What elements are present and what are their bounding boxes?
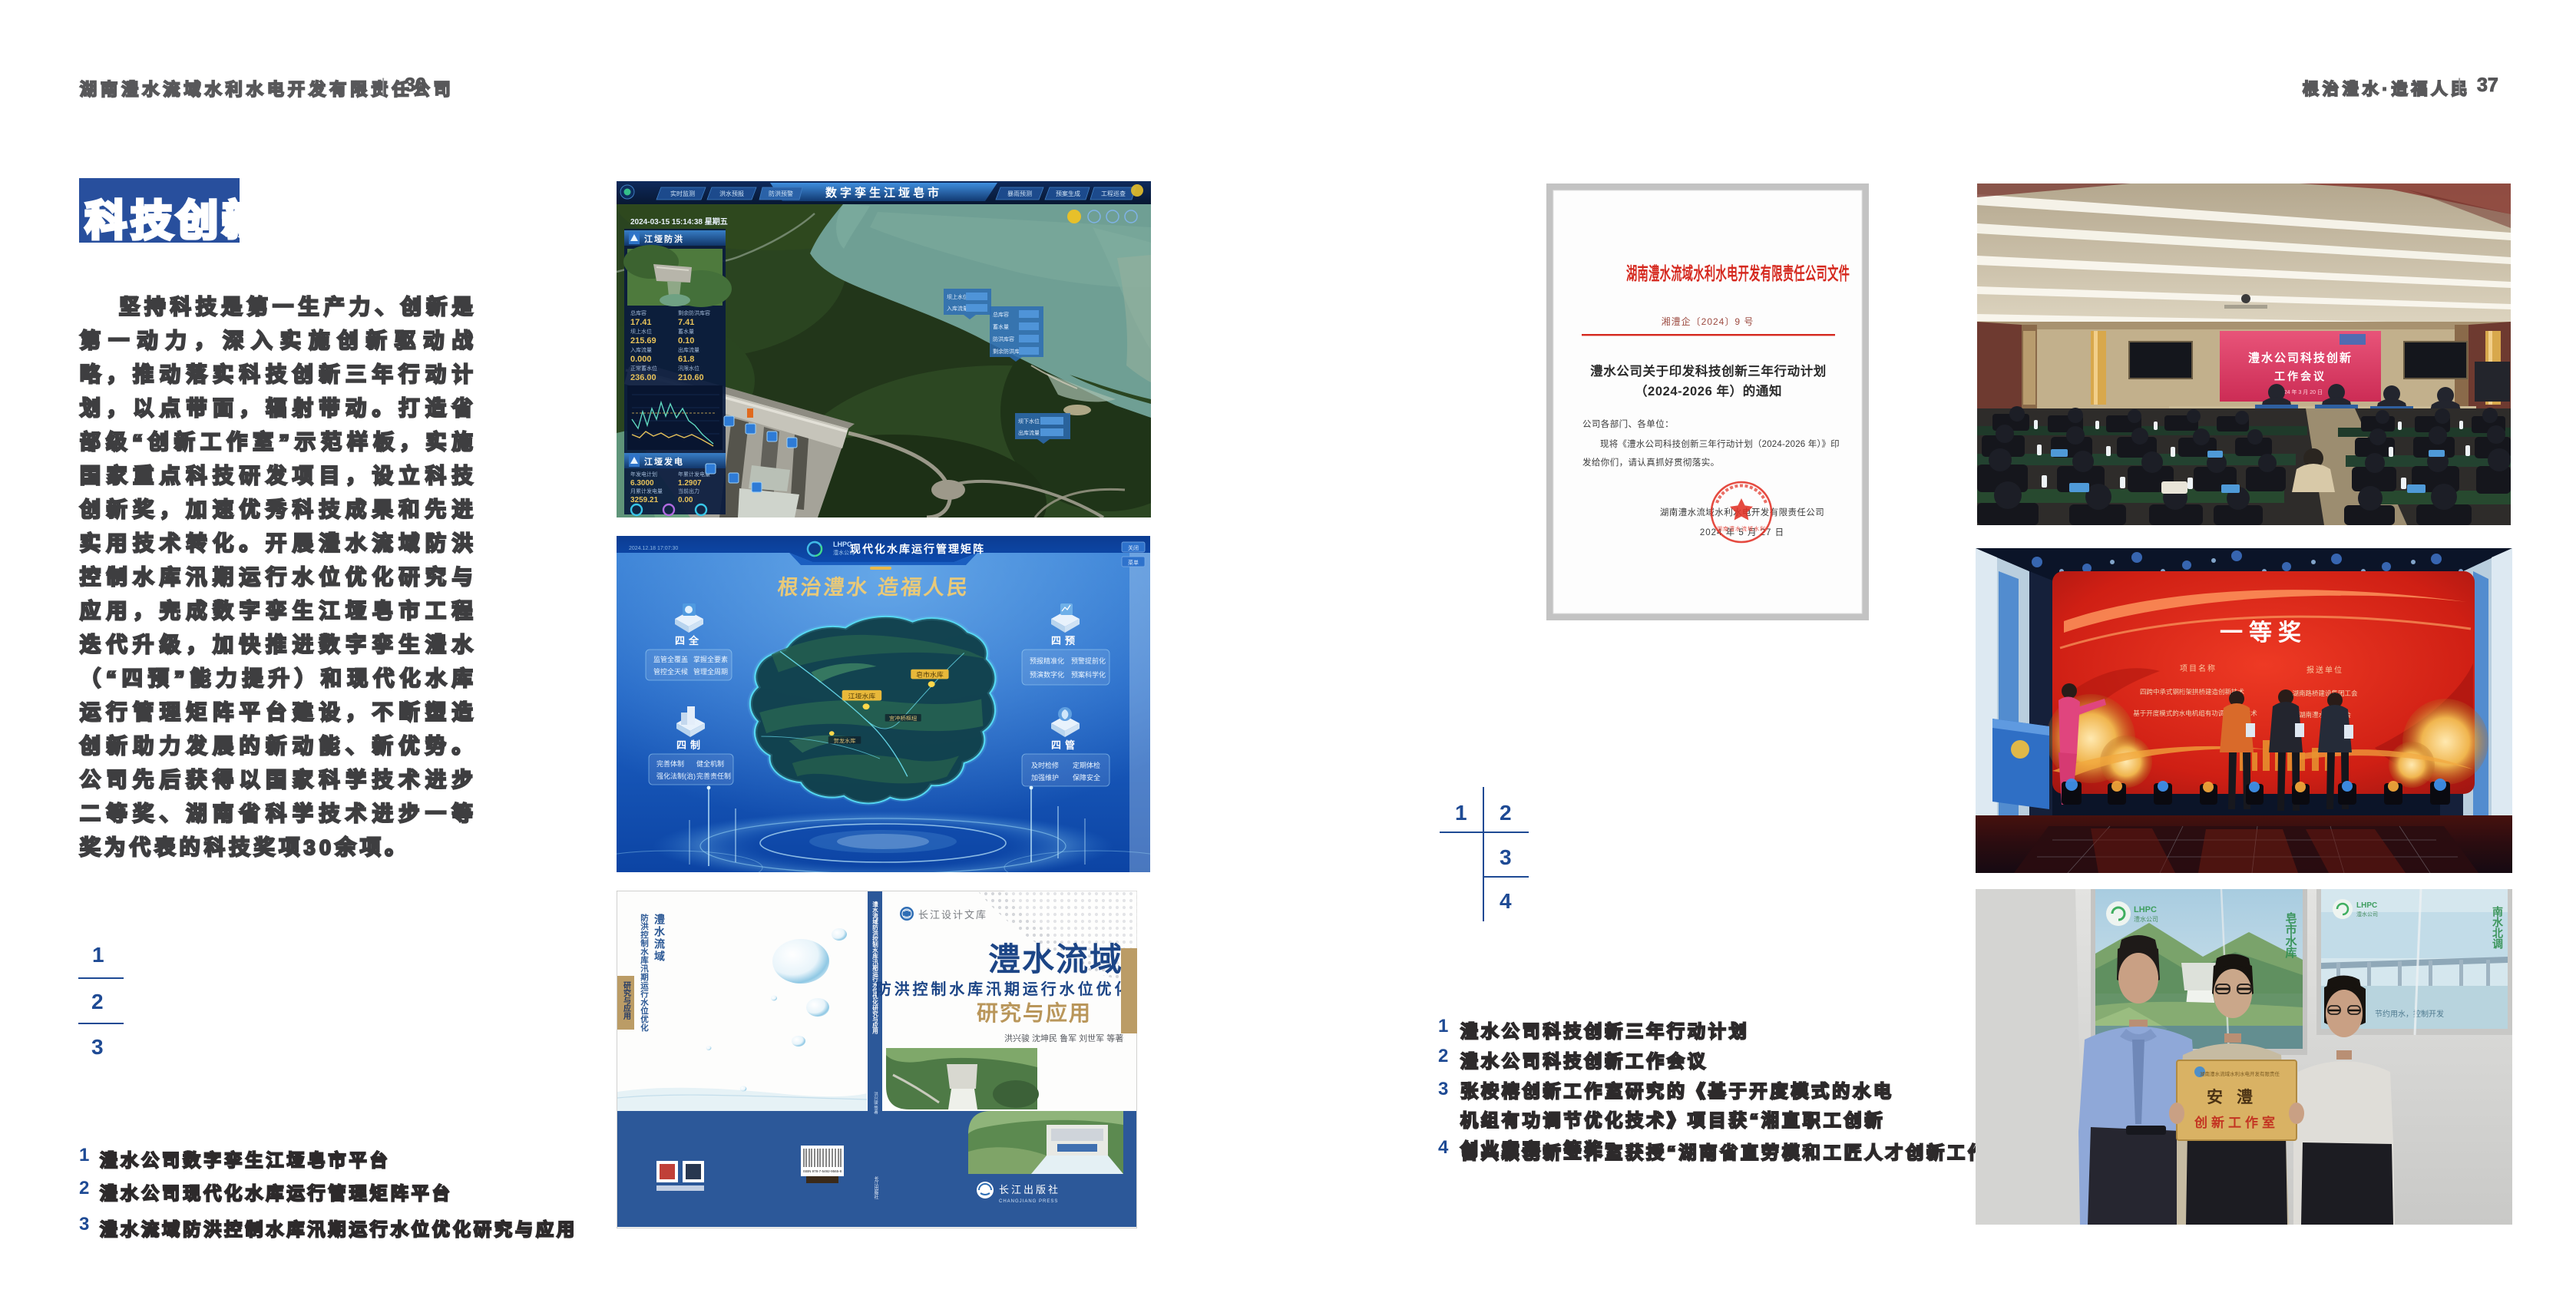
svg-text:管控全天候: 管控全天候 <box>653 667 688 676</box>
svg-text:澧水公司科技创新: 澧水公司科技创新 <box>2248 351 2353 365</box>
svg-text:湘澧企〔2024〕9 号: 湘澧企〔2024〕9 号 <box>1662 316 1754 327</box>
svg-text:报送单位: 报送单位 <box>2306 665 2343 675</box>
svg-text:根治澧水 造福人民: 根治澧水 造福人民 <box>776 575 971 599</box>
svg-text:年发电计划: 年发电计划 <box>630 471 657 478</box>
svg-text:湖南路桥建设集团工会: 湖南路桥建设集团工会 <box>2292 689 2358 697</box>
svg-text:湖南澧水流域水利水电开发有限责任: 湖南澧水流域水利水电开发有限责任 <box>2200 1070 2280 1077</box>
svg-text:7.41: 7.41 <box>678 318 694 327</box>
svg-text:管理全周期: 管理全周期 <box>693 667 728 676</box>
svg-text:暴雨预测: 暴雨预测 <box>1007 190 1032 197</box>
svg-text:防洪控制水库汛期运行水位优化: 防洪控制水库汛期运行水位优化 <box>640 913 649 1032</box>
svg-text:强化法制(治): 强化法制(治) <box>656 772 696 780</box>
svg-text:宜冲桥枢纽: 宜冲桥枢纽 <box>889 715 918 721</box>
svg-text:总库容: 总库容 <box>630 309 646 316</box>
svg-text:预警提前化: 预警提前化 <box>1071 656 1106 665</box>
svg-text:总库容: 总库容 <box>993 311 1009 318</box>
svg-text:预案生成: 预案生成 <box>1056 190 1080 197</box>
svg-text:江垭防洪: 江垭防洪 <box>644 233 684 244</box>
svg-text:澧水流域: 澧水流域 <box>653 913 666 963</box>
svg-text:LHPC: LHPC <box>2356 901 2377 910</box>
svg-text:关闭: 关闭 <box>1128 544 1139 551</box>
svg-text:正常蓄水位: 正常蓄水位 <box>630 365 657 372</box>
svg-text:研究与应用: 研究与应用 <box>977 1000 1092 1025</box>
svg-text:澧水流域防洪控制水库汛期运行水位优化研究与应用: 澧水流域防洪控制水库汛期运行水位优化研究与应用 <box>871 901 878 1035</box>
svg-text:长江出版社: 长江出版社 <box>873 1175 878 1200</box>
svg-text:湖南澧水流域水利水电开发有限责任公司文件: 湖南澧水流域水利水电开发有限责任公司文件 <box>1626 263 1850 284</box>
svg-text:贺龙水库: 贺龙水库 <box>834 737 856 743</box>
svg-text:江垭发电: 江垭发电 <box>644 456 684 467</box>
svg-text:项目名称: 项目名称 <box>2180 663 2217 673</box>
svg-text:安澧: 安澧 <box>2207 1088 2267 1106</box>
svg-text:月累计发电量: 月累计发电量 <box>630 488 663 494</box>
svg-text:1.2907: 1.2907 <box>678 479 702 488</box>
svg-text:入库流量: 入库流量 <box>630 346 652 353</box>
svg-text:坝上水位: 坝上水位 <box>630 328 652 335</box>
svg-text:四预: 四预 <box>1051 635 1079 646</box>
svg-text:掌握全要素: 掌握全要素 <box>693 655 728 663</box>
svg-text:CHANGJIANG PRESS: CHANGJIANG PRESS <box>999 1199 1058 1204</box>
svg-text:健全机制: 健全机制 <box>696 759 724 768</box>
svg-text:澧水公司: 澧水公司 <box>2134 915 2158 923</box>
svg-text:ISBN 978-7-5492-9565-8: ISBN 978-7-5492-9565-8 <box>803 1169 842 1173</box>
svg-text:LHPC: LHPC <box>2134 905 2157 914</box>
svg-text:236.00: 236.00 <box>630 373 656 382</box>
svg-text:澧水公司关于印发科技创新三年行动计划: 澧水公司关于印发科技创新三年行动计划 <box>1590 363 1827 379</box>
svg-text:（2024-2026 年）的通知: （2024-2026 年）的通知 <box>1635 383 1782 398</box>
svg-text:洪水预报: 洪水预报 <box>719 190 744 197</box>
svg-text:四全: 四全 <box>675 635 703 646</box>
svg-text:预报精准化: 预报精准化 <box>1030 656 1064 665</box>
svg-text:剩余防洪库容: 剩余防洪库容 <box>678 309 710 316</box>
svg-text:湖南澧水流域水利: 湖南澧水流域水利 <box>1717 525 1766 532</box>
svg-text:现将《澧水公司科技创新三年行动计划（2024-2026 年）: 现将《澧水公司科技创新三年行动计划（2024-2026 年）》印 <box>1600 438 1840 449</box>
svg-text:防洪控制水库汛期运行水位优化: 防洪控制水库汛期运行水位优化 <box>876 980 1133 998</box>
svg-text:工程巡查: 工程巡查 <box>1101 190 1126 197</box>
svg-text:蓄水量: 蓄水量 <box>678 328 694 335</box>
svg-text:四管: 四管 <box>1051 739 1079 751</box>
svg-text:0.00: 0.00 <box>678 496 693 504</box>
svg-text:数字孪生江垭皂市: 数字孪生江垭皂市 <box>825 186 942 200</box>
svg-text:长江设计文库: 长江设计文库 <box>918 909 987 921</box>
svg-text:完善责任制: 完善责任制 <box>696 772 731 780</box>
svg-text:2024.12.18 17:07:30: 2024.12.18 17:07:30 <box>629 546 678 551</box>
svg-text:皂市水库: 皂市水库 <box>916 671 944 678</box>
svg-text:防洪库容: 防洪库容 <box>993 336 1014 342</box>
svg-text:完善体制: 完善体制 <box>656 759 684 768</box>
svg-text:长江出版社: 长江出版社 <box>999 1184 1060 1195</box>
svg-text:及时检修: 及时检修 <box>1031 761 1059 769</box>
svg-text:实时监测: 实时监测 <box>670 190 695 197</box>
svg-text:四制: 四制 <box>676 739 704 751</box>
svg-text:监管全覆盖: 监管全覆盖 <box>653 655 688 663</box>
svg-text:一等奖: 一等奖 <box>2220 620 2307 646</box>
svg-text:预演数字化: 预演数字化 <box>1030 670 1064 679</box>
svg-text:现代化水库运行管理矩阵: 现代化水库运行管理矩阵 <box>850 543 985 555</box>
svg-text:17.41: 17.41 <box>630 318 652 327</box>
svg-text:210.60: 210.60 <box>678 373 704 382</box>
svg-text:61.8: 61.8 <box>678 355 694 364</box>
svg-text:定期体检: 定期体检 <box>1073 761 1100 769</box>
svg-text:3259.21: 3259.21 <box>630 496 659 504</box>
svg-text:215.69: 215.69 <box>630 336 656 346</box>
svg-text:蓄水量: 蓄水量 <box>993 323 1009 330</box>
svg-text:澧水流域: 澧水流域 <box>988 941 1123 977</box>
svg-text:坝上水位: 坝上水位 <box>947 293 968 300</box>
svg-text:四跨中承式钢桁架拱桥建造创新技术: 四跨中承式钢桁架拱桥建造创新技术 <box>2140 688 2245 696</box>
svg-text:当前出力: 当前出力 <box>678 488 699 494</box>
svg-text:出库流量: 出库流量 <box>678 346 699 353</box>
svg-text:公司各部门、各单位：: 公司各部门、各单位： <box>1582 418 1674 429</box>
svg-text:0.000: 0.000 <box>630 355 652 364</box>
svg-text:澧水公司: 澧水公司 <box>2356 911 2378 918</box>
svg-text:工作会议: 工作会议 <box>2274 370 2326 382</box>
svg-text:防洪预警: 防洪预警 <box>769 190 793 197</box>
svg-text:2024-03-15 15:14:38 星期五: 2024-03-15 15:14:38 星期五 <box>630 217 728 226</box>
svg-text:节约用水，控制开发: 节约用水，控制开发 <box>2375 1009 2444 1019</box>
svg-text:坝下水位: 坝下水位 <box>1018 418 1040 425</box>
svg-text:洪兴骏 沈坤民 鲁军 刘世军 等著: 洪兴骏 沈坤民 鲁军 刘世军 等著 <box>1004 1033 1123 1043</box>
svg-text:预案科学化: 预案科学化 <box>1071 670 1106 679</box>
svg-text:江垭水库: 江垭水库 <box>848 693 876 699</box>
svg-text:6.3000: 6.3000 <box>630 479 654 488</box>
svg-text:加强维护: 加强维护 <box>1031 773 1059 782</box>
svg-text:出库流量: 出库流量 <box>1018 429 1040 436</box>
svg-text:皂市水库: 皂市水库 <box>2284 911 2297 959</box>
svg-text:汛限水位: 汛限水位 <box>678 365 699 372</box>
svg-text:保障安全: 保障安全 <box>1073 773 1100 782</box>
svg-text:菜单: 菜单 <box>1128 559 1139 566</box>
svg-text:发给你们，请认真抓好贯彻落实。: 发给你们，请认真抓好贯彻落实。 <box>1582 457 1720 468</box>
svg-text:0.10: 0.10 <box>678 336 694 346</box>
svg-text:创新工作室: 创新工作室 <box>2194 1115 2279 1130</box>
svg-text:南水北调: 南水北调 <box>2492 905 2504 950</box>
svg-text:入库流量: 入库流量 <box>947 305 968 312</box>
svg-text:洪兴骏 等著: 洪兴骏 等著 <box>873 1091 878 1116</box>
